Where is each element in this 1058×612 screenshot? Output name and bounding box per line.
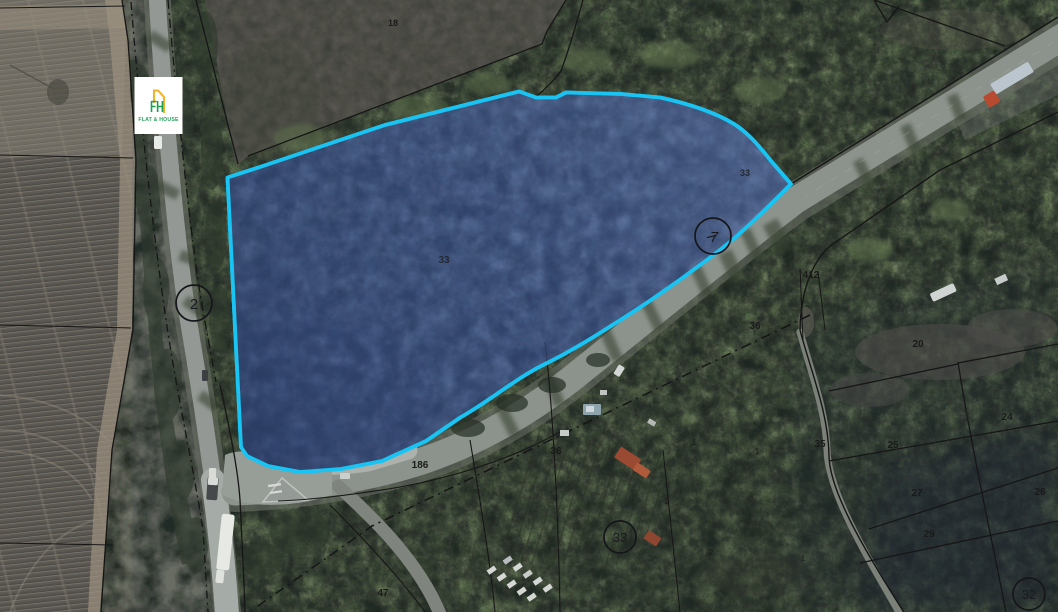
svg-text:36: 36 bbox=[749, 321, 761, 332]
svg-text:33: 33 bbox=[438, 255, 450, 266]
svg-text:186: 186 bbox=[412, 460, 429, 471]
svg-text:2: 2 bbox=[190, 296, 198, 313]
svg-text:26: 26 bbox=[1034, 487, 1046, 498]
svg-text:27: 27 bbox=[911, 488, 923, 499]
svg-text:33: 33 bbox=[613, 530, 627, 545]
svg-text:36: 36 bbox=[550, 446, 562, 457]
svg-text:20: 20 bbox=[912, 339, 924, 350]
svg-text:FLAT & HOUSE: FLAT & HOUSE bbox=[138, 117, 179, 123]
svg-text:1: 1 bbox=[692, 437, 697, 447]
svg-text:18: 18 bbox=[388, 18, 398, 28]
svg-text:29: 29 bbox=[923, 529, 935, 540]
svg-text:412: 412 bbox=[803, 270, 820, 281]
svg-text:35: 35 bbox=[814, 439, 826, 450]
svg-text:32: 32 bbox=[1022, 587, 1036, 602]
svg-text:47: 47 bbox=[377, 588, 389, 599]
svg-text:25: 25 bbox=[887, 440, 899, 451]
svg-text:1: 1 bbox=[801, 553, 806, 563]
svg-text:2: 2 bbox=[709, 547, 714, 557]
svg-text:24: 24 bbox=[1001, 412, 1013, 423]
svg-text:1: 1 bbox=[755, 446, 760, 456]
svg-text:33: 33 bbox=[740, 168, 750, 178]
svg-text:7: 7 bbox=[710, 229, 719, 246]
svg-text:2: 2 bbox=[665, 496, 670, 506]
